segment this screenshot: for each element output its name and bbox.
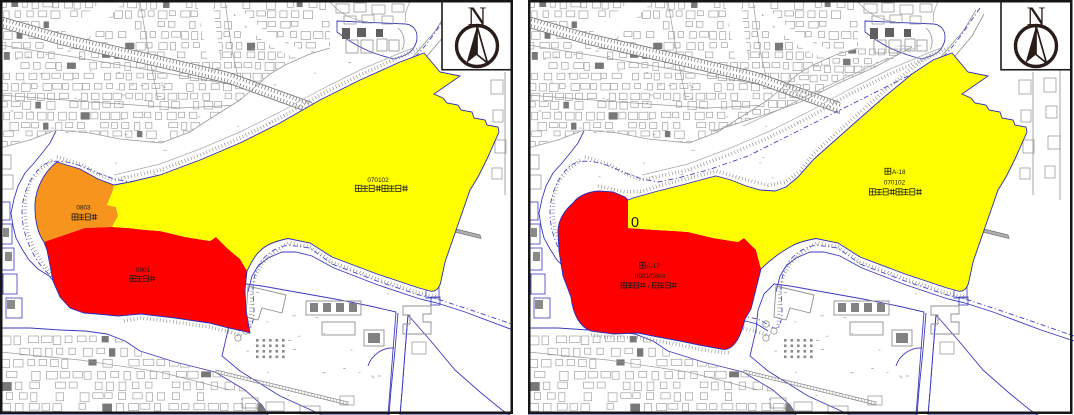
svg-text:0901: 0901 (136, 267, 151, 274)
svg-text:A-18: A-18 (892, 169, 906, 176)
svg-text:070102: 070102 (367, 177, 389, 184)
svg-text:A-17: A-17 (646, 263, 660, 270)
svg-text:0803: 0803 (76, 205, 91, 212)
svg-text:0901/0803: 0901/0803 (635, 273, 666, 280)
svg-text:070102: 070102 (884, 180, 906, 187)
svg-text:0: 0 (631, 215, 639, 231)
svg-text:/: / (648, 283, 650, 290)
